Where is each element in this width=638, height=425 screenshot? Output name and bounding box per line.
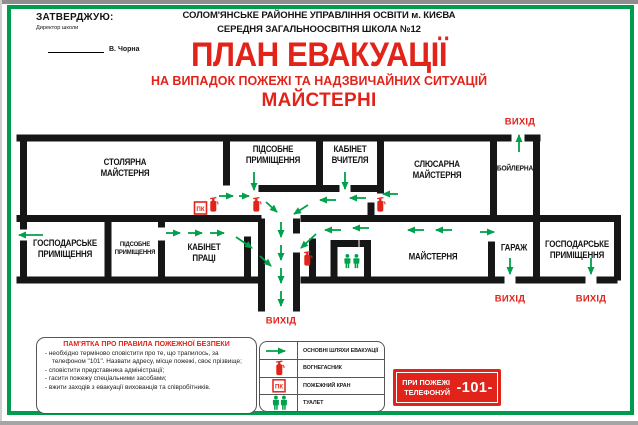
fire-extinguisher-icon (253, 198, 261, 212)
legend-label: ПОЖЕЖНИЙ КРАН (298, 383, 350, 389)
memo-title: ПАМ'ЯТКА ПРО ПРАВИЛА ПОЖЕЖНОЇ БЕЗПЕКИ (45, 341, 248, 348)
room-label-boilerna: БОЙЛЕРНА (497, 164, 533, 173)
room-label-maisternya: МАЙСТЕРНЯ (409, 252, 458, 263)
scan-edge-top (0, 0, 638, 4)
fire-extinguisher-icon (377, 198, 385, 212)
room-label-kabinet-pratsi: КАБІНЕТ ПРАЦІ (187, 242, 220, 264)
phone-text: ПРИ ПОЖЕЖІ ТЕЛЕФОНУЙ (402, 378, 450, 396)
phone-line-1: ПРИ ПОЖЕЖІ (402, 378, 450, 387)
legend-row-extinguisher: ВОГНЕГАСНИК (260, 359, 384, 376)
memo-item: - необхідно терміново сповістити про те,… (45, 350, 248, 367)
fire-hydrant-label: ПК (196, 206, 204, 213)
toilet-icon (260, 395, 298, 411)
room-label-hospodarske-right: ГОСПОДАРСЬКЕ ПРИМІЩЕННЯ (545, 239, 609, 261)
plan-section-title: МАЙСТЕРНІ (0, 90, 638, 112)
legend-row-evacuation: ОСНОВНІ ШЛЯХИ ЕВАКУАЦІЇ (260, 342, 384, 359)
room-label-pidsobne-top: ПІДСОБНЕ ПРИМІЩЕННЯ (246, 144, 300, 166)
room-label-kabinet-vchytelya: КАБІНЕТ ВЧИТЕЛЯ (332, 144, 369, 166)
poster-header: СОЛОМ'ЯНСЬКЕ РАЙОННЕ УПРАВЛІННЯ ОСВІТИ м… (0, 9, 638, 112)
fire-hydrant-icon: ПК (195, 202, 207, 214)
exit-label-bottom-center: ВИХІД (266, 316, 296, 327)
room-label-hospodarske-left: ГОСПОДАРСЬКЕ ПРИМІЩЕННЯ (33, 238, 97, 260)
exit-label-top: ВИХІД (505, 117, 535, 128)
legend-label: ВОГНЕГАСНИК (298, 365, 342, 371)
legend-box: ОСНОВНІ ШЛЯХИ ЕВАКУАЦІЇ ВОГНЕГАСНИК ПК П… (259, 341, 385, 412)
scan-edge-bottom (0, 421, 638, 425)
fire-safety-memo: ПАМ'ЯТКА ПРО ПРАВИЛА ПОЖЕЖНОЇ БЕЗПЕКИ - … (36, 337, 257, 414)
room-label-stolyarna: СТОЛЯРНА МАЙСТЕРНЯ (101, 157, 150, 179)
legend-label: ОСНОВНІ ШЛЯХИ ЕВАКУАЦІЇ (298, 348, 378, 354)
legend-row-toilet: ТУАЛЕТ (260, 394, 384, 411)
memo-item: - вжити заходів з евакуації вихованців т… (45, 384, 248, 392)
phone-number: -101- (456, 380, 492, 396)
room-label-harazh: ГАРАЖ (501, 243, 527, 254)
exit-label-right: ВИХІД (576, 294, 606, 305)
exit-label-garage: ВИХІД (495, 294, 525, 305)
floor-plan: ПК СТОЛЯРНА МАЙСТЕРНЯ ПІДСОБНЕ ПРИМІЩЕНН… (14, 110, 624, 335)
legend-row-hydrant: ПК ПОЖЕЖНИЙ КРАН (260, 377, 384, 394)
plan-subtitle: НА ВИПАДОК ПОЖЕЖІ ТА НАДЗВИЧАЙНИХ СИТУАЦ… (13, 73, 625, 88)
emergency-phone-inner: ПРИ ПОЖЕЖІ ТЕЛЕФОНУЙ -101- (396, 372, 498, 403)
org-line-1: СОЛОМ'ЯНСЬКЕ РАЙОННЕ УПРАВЛІННЯ ОСВІТИ м… (0, 9, 638, 23)
phone-line-2: ТЕЛЕФОНУЙ (402, 388, 450, 397)
room-label-slyusarna: СЛЮСАРНА МАЙСТЕРНЯ (413, 159, 462, 181)
fire-extinguisher-icon (260, 360, 298, 376)
emergency-phone-panel: ПРИ ПОЖЕЖІ ТЕЛЕФОНУЙ -101- (393, 369, 501, 406)
plan-title: ПЛАН ЕВАКУАЦІЇ (26, 38, 613, 72)
room-label-pidsobne-bottom: ПІДСОБНЕ ПРИМІЩЕННЯ (115, 241, 156, 257)
evacuation-plan-poster: ЗАТВЕРДЖУЮ: Директор школи В. Чорна СОЛО… (0, 0, 638, 425)
toilet-icon (344, 254, 359, 268)
evacuation-route-arrow-icon (260, 342, 298, 359)
fire-extinguisher-icon (210, 198, 218, 212)
floor-plan-drawing: ПК (14, 110, 624, 335)
org-line-2: СЕРЕДНЯ ЗАГАЛЬНООСВІТНЯ ШКОЛА №12 (0, 23, 638, 37)
fire-hydrant-icon: ПК (260, 378, 298, 394)
memo-item: - гасити пожежу спеціальними засобами; (45, 375, 248, 383)
legend-label: ТУАЛЕТ (298, 400, 323, 406)
svg-text:ПК: ПК (275, 384, 283, 390)
